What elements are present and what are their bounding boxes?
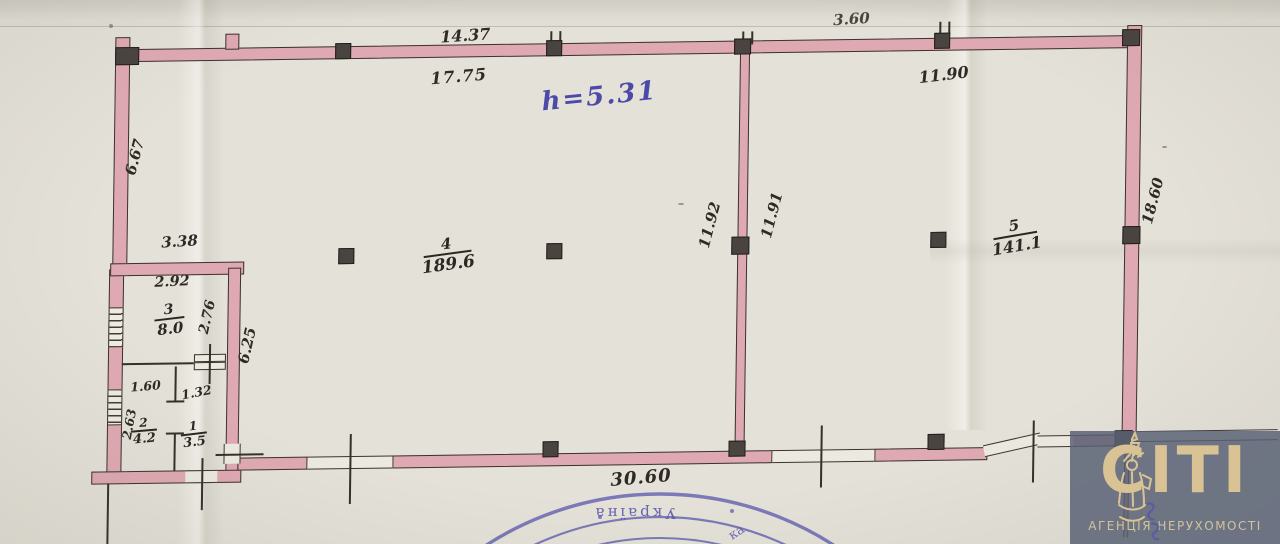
- room-label-4: 4 189.6: [419, 231, 476, 277]
- wall-rooms-bottom: [91, 470, 241, 485]
- paper-speck-2: [1162, 146, 1167, 148]
- ink-curl-2: [1151, 524, 1159, 540]
- room2-area: 4.2: [131, 430, 158, 447]
- door-axis-bottom-3: [1032, 421, 1034, 483]
- wall-bottom-d: [1037, 435, 1073, 448]
- partition-rooms-divider-a: [174, 366, 176, 400]
- column-right-wall: [1122, 226, 1140, 244]
- column-mid-1: [338, 248, 354, 264]
- agency-watermark: CITI АГЕНЦІЯ НЕРУХОМОСТІ: [1070, 431, 1280, 544]
- door-axis-room3: [209, 344, 211, 384]
- dim-top-outer-left: 14.37: [440, 24, 491, 46]
- dim-top-outer-right: 3.60: [833, 9, 870, 29]
- room-label-2: 2 4.2: [130, 415, 158, 448]
- partition-rooms-divider-b: [173, 433, 175, 471]
- blue-ink-marks: [1125, 500, 1175, 544]
- dim-right-wall-height: 18.60: [1138, 176, 1167, 226]
- dim-left-jog-width: 3.38: [161, 231, 198, 251]
- column-bottom-midwall: [728, 441, 745, 457]
- stamp-center-ring: [384, 538, 936, 544]
- paper-speck-3: [678, 203, 684, 205]
- room1-area: 3.5: [181, 433, 208, 451]
- dim-room2-width: 1.60: [130, 377, 161, 395]
- stub-tick-4: [751, 31, 753, 44]
- ink-stamp: Україна ка: [320, 478, 1020, 544]
- ink-curl-1: [1147, 504, 1154, 520]
- column-top-left-corner: [115, 47, 139, 65]
- agency-brand: CITI: [1070, 438, 1280, 502]
- wall-top: [121, 35, 1140, 62]
- column-top-1: [335, 43, 351, 59]
- dim-room3-width: 2.92: [154, 272, 190, 291]
- column-mid-wall: [731, 236, 749, 254]
- dim-room3-depth: 2.76: [196, 299, 219, 336]
- dim-mid-wall-right: 11.91: [757, 190, 786, 240]
- door-axis-rooms-bottom: [201, 458, 203, 510]
- room-label-5: 5 141.1: [988, 212, 1043, 259]
- wall-stub-above-top: [225, 34, 239, 50]
- paper-speck-1: [109, 24, 113, 28]
- room3-area: 8.0: [155, 318, 187, 339]
- line-below-corner: [106, 483, 108, 544]
- column-bottom-2: [927, 434, 944, 450]
- column-top-4: [934, 33, 950, 49]
- statue-torch-cup: [1131, 443, 1139, 447]
- statue-torch-flame: [1132, 433, 1137, 441]
- room-label-3: 3 8.0: [153, 300, 186, 339]
- dim-top-inner-left: 17.75: [430, 65, 488, 89]
- wall-bottom-a: [237, 457, 307, 471]
- partition-room3-bottom: [122, 362, 194, 365]
- statue-tablet: [1142, 475, 1151, 489]
- column-top-3: [734, 38, 751, 54]
- column-top-right-corner: [1122, 29, 1140, 46]
- column-mid-3: [930, 232, 946, 248]
- column-top-2: [546, 40, 562, 56]
- room-label-1: 1 3.5: [180, 418, 209, 451]
- wall-left-lower: [106, 269, 124, 481]
- dim-mid-wall-left: 11.92: [695, 200, 724, 250]
- dim-top-inner-right: 11.90: [918, 62, 970, 87]
- window-left-1: [108, 307, 124, 347]
- stamp-dot-right: [730, 509, 734, 513]
- ceiling-height-note: h=5.31: [541, 76, 659, 118]
- door-opening-bottom-2: [772, 449, 874, 463]
- wall-bottom-b: [392, 450, 772, 468]
- window-left-2: [107, 389, 123, 425]
- column-bottom-1: [542, 441, 558, 457]
- scanned-floor-plan-photo: 14.37 17.75 3.60 11.90 6.67 18.60 11.92 …: [0, 0, 1280, 544]
- column-mid-2: [546, 243, 562, 259]
- stamp-country-text: Україна: [593, 504, 677, 522]
- agency-tagline: АГЕНЦІЯ НЕРУХОМОСТІ: [1070, 519, 1280, 533]
- dim-room1-width: 1.32: [180, 382, 212, 402]
